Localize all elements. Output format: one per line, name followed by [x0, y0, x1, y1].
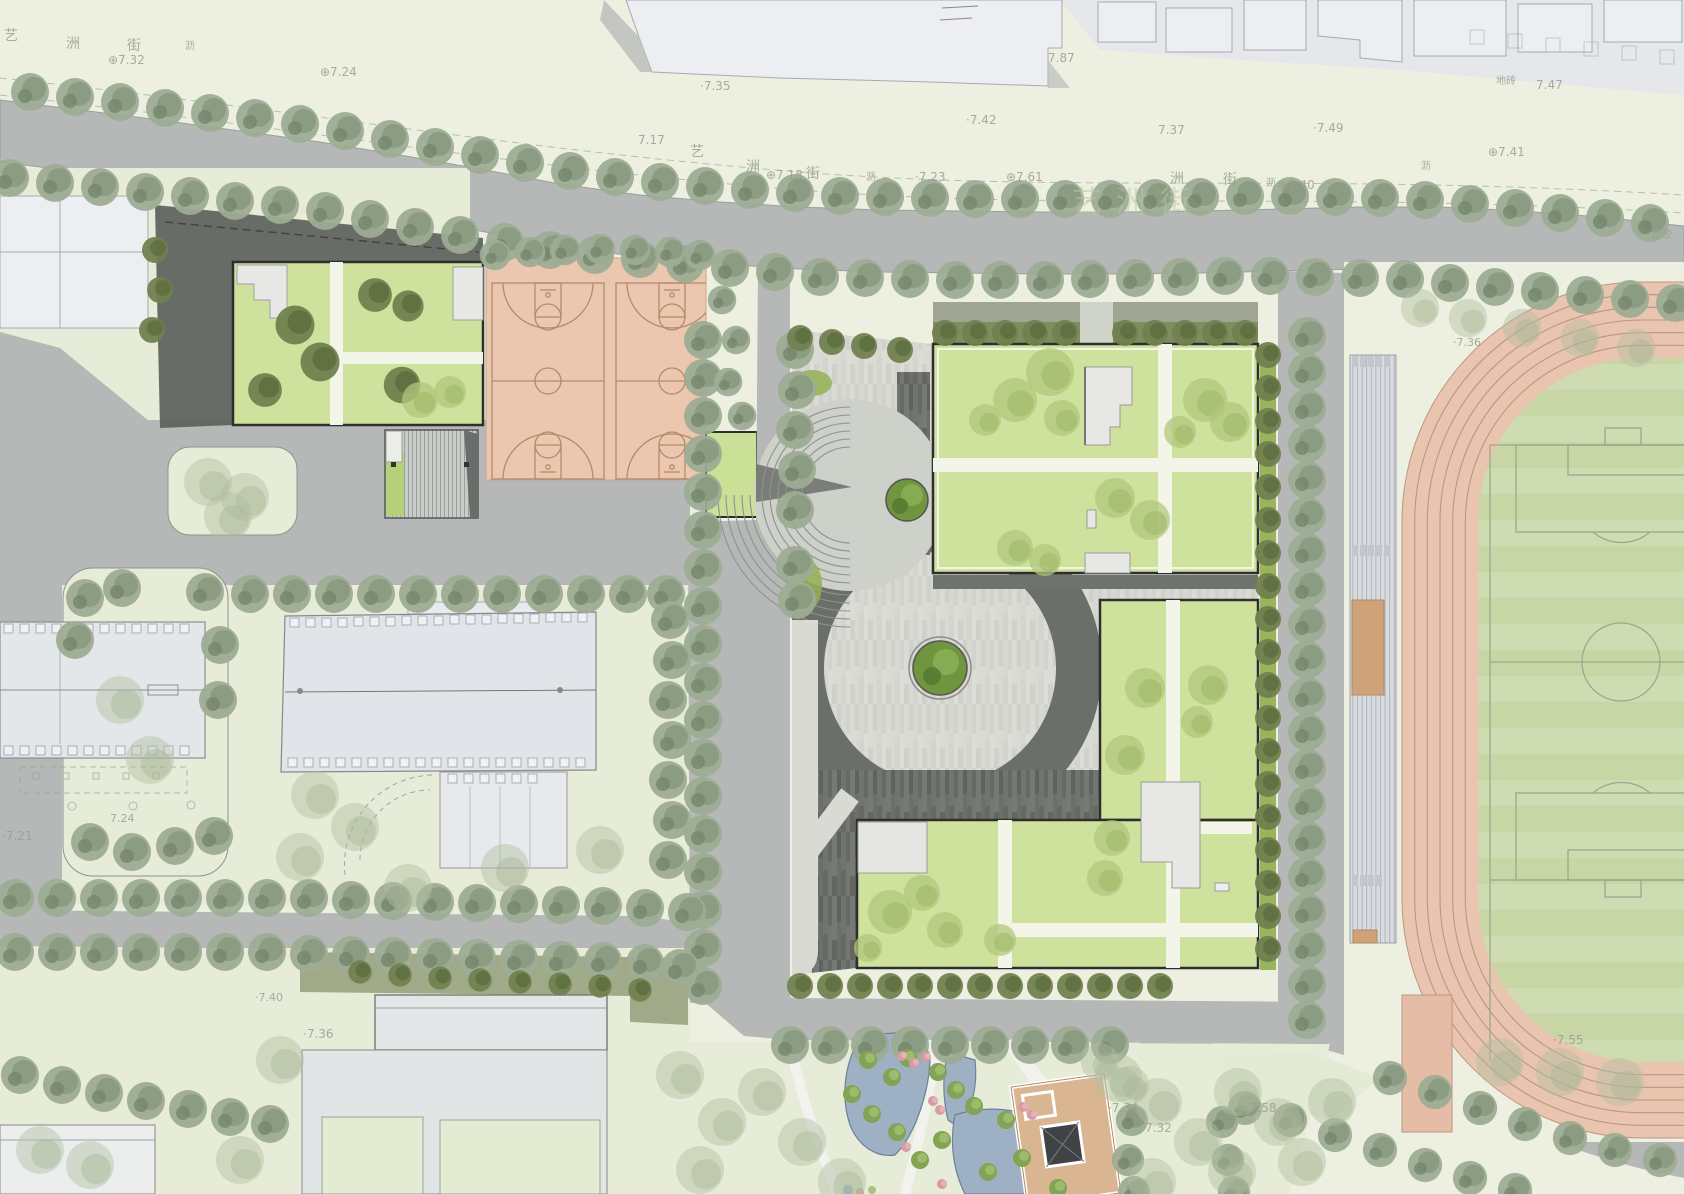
building-north [933, 344, 1258, 573]
map-label: 沥 [866, 171, 876, 183]
map-label: 7.47 [1536, 78, 1563, 92]
courts-surface [486, 258, 706, 480]
local-road [58, 505, 688, 578]
map-label: 7.37 [1158, 123, 1185, 137]
context-house [1414, 0, 1506, 56]
athletics-area [1344, 262, 1684, 1142]
entry-crossing [1080, 302, 1113, 344]
map-label: 沥 [1421, 160, 1431, 172]
map-label: 洲 [1170, 171, 1184, 187]
map-label: 7.87 [1048, 51, 1075, 65]
map-label: ·7.42 [966, 113, 997, 127]
map-label: ·7.40 [255, 991, 283, 1004]
context-house [1098, 2, 1156, 42]
sports-field [1478, 358, 1684, 1062]
map-label: ·7.23 [915, 170, 946, 184]
louver-building [385, 430, 478, 518]
map-label: 7.24 [110, 812, 135, 825]
map-label: 艺洲街 [1072, 185, 1204, 220]
map-label: ·7.35 [700, 79, 731, 93]
map-label: ⊕7.32 [108, 53, 145, 67]
sw-building-long [375, 995, 607, 1050]
map-label: 艺 [4, 28, 18, 44]
map-label: 洲 [66, 36, 80, 52]
map-label: ⊕7.41 [1488, 145, 1525, 159]
site-plan-canvas: 艺洲街沥⊕7.32⊕7.24·7.357.17艺洲⊕7.18街沥·7.23·7.… [0, 0, 1684, 1194]
runway-extension [1402, 995, 1452, 1132]
map-label: 街 [1223, 172, 1237, 188]
west-walkway [792, 620, 818, 975]
skylight [858, 822, 927, 873]
pyramid-skylight [1041, 1122, 1084, 1167]
plaza-center-tree [824, 552, 1056, 784]
skylight [1085, 553, 1130, 573]
map-label: ·7.55 [1553, 1033, 1584, 1047]
existing-building-nw [0, 196, 148, 328]
map-label: ⊕7.24 [320, 65, 357, 79]
map-label: ·7.49 [1313, 121, 1344, 135]
roof-vent [1215, 883, 1229, 891]
courtyard [322, 1117, 423, 1194]
context-building-large [626, 0, 1062, 86]
courtyard [440, 1120, 600, 1194]
map-label: ·7.21 [2, 829, 33, 843]
stand-structure [1353, 930, 1377, 943]
map-label: 街 [806, 166, 820, 182]
stand-structure [1352, 600, 1384, 695]
map-label: 沥 [1266, 177, 1276, 189]
context-house [1166, 8, 1232, 52]
amphitheater-tree [886, 479, 928, 521]
site-plan-drawing: 艺洲街沥⊕7.32⊕7.24·7.357.17艺洲⊕7.18街沥·7.23·7.… [0, 0, 1684, 1194]
map-label: 街 [127, 38, 141, 54]
map-label: ·7.34 [1108, 1101, 1139, 1115]
map-label: ·7.36 [1453, 336, 1481, 349]
map-label: ·7.58 [1246, 1101, 1277, 1115]
context-house [1244, 0, 1306, 50]
map-label: ⊕7.18 [766, 168, 803, 182]
map-label: 洲 [746, 159, 760, 175]
map-label: 塑胶 [1652, 228, 1672, 241]
map-label: ·7.36 [303, 1027, 334, 1041]
map-label: ⊕7.40 [1278, 178, 1315, 192]
context-house [1518, 4, 1592, 52]
skylight-small [1087, 510, 1096, 528]
context-house [1604, 0, 1682, 42]
map-label: 地砖 [1496, 74, 1516, 87]
map-label: ⊕7.61 [1006, 170, 1043, 184]
grandstand [1350, 355, 1396, 943]
map-label: 艺 [690, 144, 704, 160]
map-label: 7.32 [1145, 1121, 1172, 1135]
skylight [453, 267, 483, 320]
map-label: 7.17 [638, 133, 665, 147]
map-label: 沥 [185, 40, 195, 52]
